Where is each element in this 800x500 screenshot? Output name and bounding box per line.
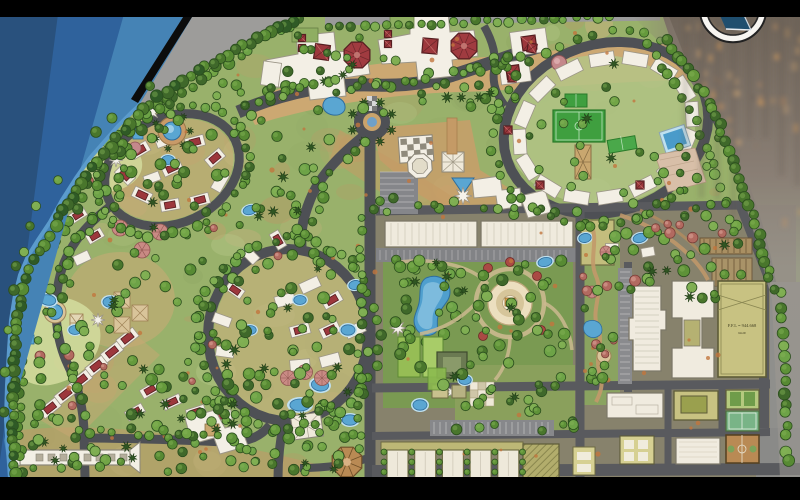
svg-text:944.00: 944.00 [738,332,746,335]
svg-text:F.F.L = 944.668: F.F.L = 944.668 [728,323,757,328]
